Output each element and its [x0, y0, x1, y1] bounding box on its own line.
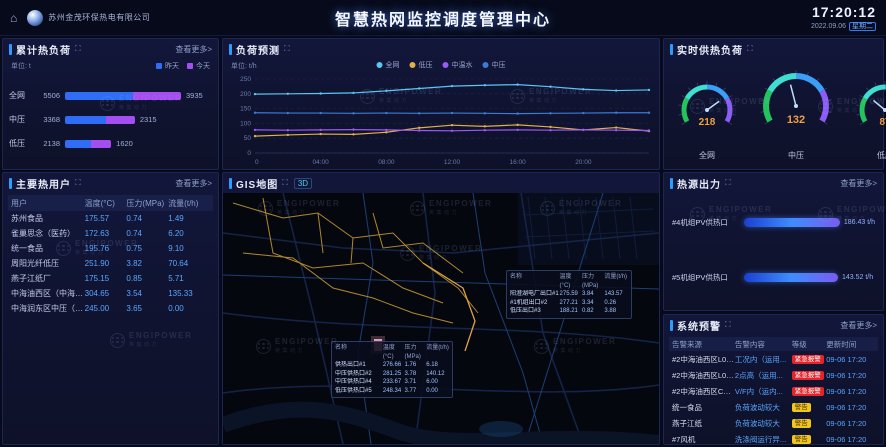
- map-3d-toggle[interactable]: 3D: [294, 178, 312, 189]
- alert-content: 洗涤阀运行异...: [735, 434, 792, 445]
- yesterday-bar: [65, 116, 106, 124]
- temperature-value: 245.00: [85, 304, 127, 313]
- title-accent: [9, 178, 12, 189]
- alert-level-cell: 警告: [792, 434, 827, 445]
- legend-item[interactable]: 今天: [187, 61, 210, 71]
- source-bars: #4机组PV供热口186.43 t/h#5机组PV供热口143.52 t/h: [672, 217, 875, 327]
- expand-icon[interactable]: ⛶: [284, 44, 290, 54]
- column-header: 压力(MPa): [582, 273, 604, 290]
- yesterday-value: 5506: [36, 91, 60, 100]
- expand-icon[interactable]: ⛶: [282, 178, 288, 188]
- pressure-value: 3.78: [405, 370, 427, 379]
- pressure-value: 3.71: [405, 378, 427, 387]
- expand-icon[interactable]: ⛶: [725, 320, 731, 330]
- alert-source: #2中海油西区L0锅...: [672, 354, 735, 365]
- source-value: 186.43 t/h: [844, 219, 875, 226]
- title-accent: [670, 178, 673, 189]
- alert-level-badge: 警告: [792, 403, 811, 413]
- bar-track: [65, 92, 181, 100]
- svg-text:04:00: 04:00: [313, 159, 330, 166]
- column-header: 名称: [510, 273, 560, 290]
- column-header: 温度(°C): [85, 198, 127, 209]
- panel-heat-source-output: 热源出力 ⛶ 查看更多> #4机组PV供热口186.43 t/h#5机组PV供热…: [663, 172, 884, 311]
- panel-body: 用户温度(°C)压力(MPa)流量(t/h)苏州食品175.570.741.49…: [3, 193, 218, 444]
- legend-label: 中压: [492, 60, 506, 70]
- panel-body: 218全网132中压87低压: [664, 59, 883, 169]
- outlet-name: 低压出口#3: [510, 307, 560, 316]
- panel-title: 累计热负荷: [16, 42, 71, 57]
- flow-value: 0.00: [426, 387, 449, 396]
- alert-time: 09-06 17:20: [826, 371, 875, 380]
- user-name: 苏州食品: [11, 213, 85, 224]
- legend-dot: [187, 63, 193, 69]
- column-header: 温度(°C): [383, 344, 405, 361]
- cumulative-bar-row: 中压33682315: [9, 114, 212, 125]
- view-more-link[interactable]: 查看更多>: [175, 178, 212, 189]
- alert-row: 统一食品负荷波动较大警告09-06 17:20: [669, 399, 878, 415]
- cumulative-legend: 昨天今天: [156, 61, 210, 71]
- svg-text:0: 0: [247, 150, 251, 157]
- gauge-dial: 218: [668, 70, 746, 148]
- users-table-header: 用户温度(°C)压力(MPa)流量(t/h): [8, 195, 213, 211]
- alert-level-cell: 警告: [792, 418, 827, 429]
- alert-time: 09-06 17:20: [826, 435, 875, 444]
- column-header: 更新时间: [826, 339, 875, 350]
- svg-text:250: 250: [240, 76, 251, 83]
- user-name: 雀巢思念（医药）: [11, 228, 85, 239]
- forecast-line-chart: 050100150200250004:0008:0012:0016:0020:0…: [225, 65, 657, 176]
- flow-value: 0.26: [604, 299, 628, 308]
- company-name: 苏州金茂环保热电有限公司: [48, 12, 150, 23]
- temperature-value: 175.57: [85, 214, 127, 223]
- pressure-value: 0.85: [126, 274, 168, 283]
- panel-title: 负荷预测: [236, 42, 280, 57]
- panel-title: 主要热用户: [16, 176, 71, 191]
- flow-value: 0.00: [168, 304, 210, 313]
- temperature-value: 275.59: [560, 290, 582, 299]
- date: 2022.09.06: [811, 23, 846, 30]
- alert-level-cell: 警告: [792, 402, 827, 413]
- alert-source: 燕子江纸: [672, 418, 735, 429]
- svg-text:100: 100: [240, 120, 251, 127]
- alert-level-badge: 紧急报警: [792, 371, 824, 381]
- title-accent: [229, 178, 232, 189]
- gauge-label: 中压: [788, 150, 804, 161]
- yesterday-bar: [65, 140, 91, 148]
- alert-level-cell: 紧急报警: [792, 386, 827, 397]
- expand-icon[interactable]: ⛶: [747, 44, 753, 54]
- panel-body: #4机组PV供热口186.43 t/h#5机组PV供热口143.52 t/h: [664, 193, 883, 310]
- users-table: 用户温度(°C)压力(MPa)流量(t/h)苏州食品175.570.741.49…: [8, 195, 213, 316]
- alert-level-cell: 紧急报警: [792, 354, 827, 365]
- gauge-2: 132中压: [746, 60, 846, 161]
- bar-row-label: 低压: [9, 138, 31, 149]
- legend-item[interactable]: 中压: [483, 60, 506, 70]
- source-label: #5机组PV供热口: [672, 272, 744, 283]
- temperature-value: 277.21: [560, 299, 582, 308]
- alert-content: 负荷波动较大: [735, 402, 792, 413]
- expand-icon[interactable]: ⛶: [725, 178, 731, 188]
- alerts-table-header: 告警来源告警内容等级更新时间: [669, 337, 878, 351]
- map-roads: [223, 193, 659, 444]
- alert-row: 燕子江纸负荷波动较大警告09-06 17:20: [669, 415, 878, 431]
- legend-dot: [410, 62, 416, 68]
- panel-header: 实时供热负荷 ⛶: [664, 39, 883, 59]
- outlet-name: #1机组出口#2: [510, 299, 560, 308]
- today-bar: [106, 116, 134, 124]
- tooltip-table: 名称温度(°C)压力(MPa)流量(t/h)阳澄湖电厂出口#1275.593.8…: [510, 273, 628, 316]
- column-header: 压力(MPa): [126, 198, 168, 209]
- table-row: 周阳光纤低压251.903.8270.64: [8, 256, 213, 271]
- top-header: ⌂ 苏州金茂环保热电有限公司 智慧热网监控调度管理中心 17:20:12 202…: [0, 0, 886, 36]
- table-row: 中海油西区（中海油）304.653.54135.33: [8, 286, 213, 301]
- map-tooltip-1: 名称温度(°C)压力(MPa)流量(t/h)阳澄湖电厂出口#1275.593.8…: [506, 270, 632, 319]
- table-row: 雀巢思念（医药）172.630.746.20: [8, 226, 213, 241]
- alert-content: 工况内（运用...: [735, 354, 792, 365]
- outlet-name: 供热出口#1: [335, 361, 383, 370]
- bar-row-label: 全网: [9, 90, 31, 101]
- user-name: 周阳光纤低压: [11, 258, 85, 269]
- temperature-value: 233.67: [383, 378, 405, 387]
- legend-dot: [377, 62, 383, 68]
- alert-row: #2中海油西区CO排...V/F内（运内...紧急报警09-06 17:20: [669, 383, 878, 399]
- legend-label: 低压: [419, 60, 433, 70]
- temperature-value: 248.34: [383, 387, 405, 396]
- source-bar-row: #5机组PV供热口143.52 t/h: [672, 272, 875, 283]
- svg-text:08:00: 08:00: [378, 159, 395, 166]
- flow-value: 140.12: [426, 370, 449, 379]
- weekday-badge: 星期二: [849, 22, 876, 31]
- pressure-value: 0.75: [126, 244, 168, 253]
- panel-header: 累计热负荷 ⛶ 查看更多>: [3, 39, 218, 59]
- clock: 17:20:12: [811, 4, 876, 20]
- flow-value: 3.88: [604, 307, 628, 316]
- bar-track: [65, 116, 135, 124]
- column-header: 流量(t/h): [168, 198, 210, 209]
- user-name: 中海润东区中压（预）: [11, 303, 85, 314]
- pressure-value: 3.82: [126, 259, 168, 268]
- legend-dot: [156, 63, 162, 69]
- column-header: 告警内容: [735, 339, 792, 350]
- alert-level-badge: 警告: [792, 435, 811, 445]
- alert-content: 负荷波动较大: [735, 418, 792, 429]
- svg-text:0: 0: [255, 159, 259, 166]
- panel-realtime-heat-load: 实时供热负荷 ⛶ 218全网132中压87低压: [663, 38, 884, 170]
- gauge-dial: 87: [846, 70, 886, 148]
- view-more-link[interactable]: 查看更多>: [840, 178, 877, 189]
- panel-body: 名称温度(°C)压力(MPa)流量(t/h)阳澄湖电厂出口#1275.593.8…: [223, 193, 659, 444]
- flow-value: 5.71: [168, 274, 210, 283]
- today-bar: [91, 140, 111, 148]
- title-accent: [9, 44, 12, 55]
- tooltip-table: 名称温度(°C)压力(MPa)流量(t/h)供热出口#1276.661.766.…: [335, 344, 449, 395]
- cumulative-bars: 全网55063935中压33682315低压21381620: [9, 77, 212, 162]
- panel-main-heat-users: 主要热用户 ⛶ 查看更多> 用户温度(°C)压力(MPa)流量(t/h)苏州食品…: [2, 172, 219, 445]
- flow-value: 70.64: [168, 259, 210, 268]
- flow-value: 6.18: [426, 361, 449, 370]
- pressure-value: 0.74: [126, 214, 168, 223]
- panel-body: 告警来源告警内容等级更新时间#2中海油西区L0锅...工况内（运用...紧急报警…: [664, 335, 883, 444]
- forecast-svg: 050100150200250004:0008:0012:0016:0020:0…: [225, 65, 657, 171]
- pressure-value: 3.34: [582, 299, 604, 308]
- alert-time: 09-06 17:20: [826, 403, 875, 412]
- date-line: 2022.09.06星期二: [811, 21, 876, 31]
- svg-text:12:00: 12:00: [444, 159, 461, 166]
- yesterday-bar: [65, 92, 133, 100]
- table-row: 燕子江纸厂175.150.855.71: [8, 271, 213, 286]
- map-tooltip-2: 名称温度(°C)压力(MPa)流量(t/h)供热出口#1276.661.766.…: [331, 341, 453, 398]
- user-name: 中海油西区（中海油）: [11, 288, 85, 299]
- legend-item[interactable]: 全网: [377, 60, 400, 70]
- temperature-value: 276.66: [383, 361, 405, 370]
- legend-item[interactable]: 中温水: [443, 60, 473, 70]
- flow-value: 1.49: [168, 214, 210, 223]
- temperature-value: 175.15: [85, 274, 127, 283]
- panel-header: 热源出力 ⛶ 查看更多>: [664, 173, 883, 193]
- column-header: 告警来源: [672, 339, 735, 350]
- source-bar-row: #4机组PV供热口186.43 t/h: [672, 217, 875, 228]
- company-logo: [27, 10, 43, 26]
- legend-item[interactable]: 昨天: [156, 61, 179, 71]
- yesterday-value: 2138: [36, 139, 60, 148]
- gauge-value: 87: [879, 117, 886, 128]
- datetime-block: 17:20:12 2022.09.06星期二: [811, 4, 876, 31]
- panel-system-alerts: 系统预警 ⛶ 查看更多> 告警来源告警内容等级更新时间#2中海油西区L0锅...…: [663, 314, 884, 445]
- expand-icon[interactable]: ⛶: [75, 178, 81, 188]
- pressure-value: 3.77: [405, 387, 427, 396]
- panel-gis-map: GIS地图 ⛶ 3D: [222, 172, 660, 445]
- panel-header: 主要热用户 ⛶ 查看更多>: [3, 173, 218, 193]
- title-accent: [229, 44, 232, 55]
- cumulative-bar-row: 低压21381620: [9, 138, 212, 149]
- flow-value: 143.57: [604, 290, 628, 299]
- legend-label: 今天: [196, 61, 210, 71]
- alert-level-cell: 紧急报警: [792, 370, 827, 381]
- svg-text:150: 150: [240, 106, 251, 113]
- gauge-3: 87低压: [846, 70, 886, 161]
- gauges-row: 218全网132中压87低压: [664, 59, 883, 169]
- home-icon[interactable]: ⌂: [10, 11, 17, 25]
- gauge-1: 218全网: [668, 70, 746, 161]
- column-header: 名称: [335, 344, 383, 361]
- svg-text:50: 50: [244, 135, 252, 142]
- gis-map-canvas[interactable]: 名称温度(°C)压力(MPa)流量(t/h)阳澄湖电厂出口#1275.593.8…: [223, 193, 659, 444]
- pressure-value: 3.84: [582, 290, 604, 299]
- source-value: 143.52 t/h: [842, 274, 873, 281]
- legend-dot: [483, 62, 489, 68]
- legend-item[interactable]: 低压: [410, 60, 433, 70]
- column-header: 温度(°C): [560, 273, 582, 290]
- alert-time: 09-06 17:20: [826, 387, 875, 396]
- alerts-table: 告警来源告警内容等级更新时间#2中海油西区L0锅...工况内（运用...紧急报警…: [669, 337, 878, 447]
- dashboard: ⌂ 苏州金茂环保热电有限公司 智慧热网监控调度管理中心 17:20:12 202…: [0, 0, 886, 447]
- svg-text:16:00: 16:00: [510, 159, 527, 166]
- panel-title: 实时供热负荷: [677, 42, 743, 57]
- panel-title: 热源出力: [677, 176, 721, 191]
- temperature-value: 251.90: [85, 259, 127, 268]
- source-bar: [744, 273, 838, 282]
- gauge-value: 132: [787, 114, 805, 126]
- temperature-value: 195.76: [85, 244, 127, 253]
- alert-row: #7风机洗涤阀运行异...警告09-06 17:20: [669, 431, 878, 447]
- table-row: 苏州食品175.570.741.49: [8, 211, 213, 226]
- outlet-name: 中压供热口#2: [335, 370, 383, 379]
- bar-track: [65, 140, 111, 148]
- column-header: 压力(MPa): [405, 344, 427, 361]
- legend-label: 昨天: [165, 61, 179, 71]
- alert-level-badge: 紧急报警: [792, 387, 824, 397]
- view-more-link[interactable]: 查看更多>: [840, 320, 877, 331]
- today-value: 3935: [186, 91, 203, 100]
- user-name: 燕子江纸厂: [11, 273, 85, 284]
- alert-row: #2中海油西区L0锅...工况内（运用...紧急报警09-06 17:20: [669, 351, 878, 367]
- bar-row-label: 中压: [9, 114, 31, 125]
- svg-text:200: 200: [240, 91, 251, 98]
- alert-source: #7风机: [672, 434, 735, 445]
- panel-header: GIS地图 ⛶ 3D: [223, 173, 659, 193]
- panel-cumulative-heat-load: 累计热负荷 ⛶ 查看更多> 单位: t 昨天今天 全网55063935中压336…: [2, 38, 219, 170]
- pressure-value: 0.74: [126, 229, 168, 238]
- source-track: 143.52 t/h: [744, 273, 875, 282]
- svg-text:20:00: 20:00: [575, 159, 592, 166]
- source-label: #4机组PV供热口: [672, 217, 744, 228]
- alert-row: #2中海油西区L0锅...2点高（运用...紧急报警09-06 17:20: [669, 367, 878, 383]
- alert-content: 2点高（运用...: [735, 370, 792, 381]
- gauge-value: 218: [699, 117, 716, 128]
- unit-label: 单位: t: [11, 61, 31, 71]
- gauge-dial: 132: [746, 60, 846, 148]
- column-header: 流量(t/h): [426, 344, 449, 361]
- flow-value: 6.20: [168, 229, 210, 238]
- alert-time: 09-06 17:20: [826, 419, 875, 428]
- forecast-legend: 全网低压中温水中压: [377, 60, 506, 70]
- pressure-value: 3.65: [126, 304, 168, 313]
- column-header: 流量(t/h): [604, 273, 628, 290]
- flow-value: 9.10: [168, 244, 210, 253]
- yesterday-value: 3368: [36, 115, 60, 124]
- temperature-value: 188.21: [560, 307, 582, 316]
- flow-value: 135.33: [168, 289, 210, 298]
- column-header: 用户: [11, 198, 85, 209]
- column-header: 等级: [792, 339, 827, 350]
- panel-header: 负荷预测 ⛶: [223, 39, 659, 59]
- alert-source: 统一食品: [672, 402, 735, 413]
- today-bar: [133, 92, 181, 100]
- alert-source: #2中海油西区L0锅...: [672, 370, 735, 381]
- today-value: 2315: [140, 115, 157, 124]
- alert-level-badge: 紧急报警: [792, 355, 824, 365]
- gauge-label: 全网: [699, 150, 715, 161]
- pressure-value: 0.82: [582, 307, 604, 316]
- panel-body: 单位: t 昨天今天 全网55063935中压33682315低压2138162…: [3, 59, 218, 169]
- pressure-value: 1.76: [405, 361, 427, 370]
- source-bar: [744, 218, 840, 227]
- pressure-value: 3.54: [126, 289, 168, 298]
- title-accent: [670, 320, 673, 331]
- outlet-name: 中压供热口#4: [335, 378, 383, 387]
- temperature-value: 172.63: [85, 229, 127, 238]
- source-track: 186.43 t/h: [744, 218, 875, 227]
- user-name: 统一食品: [11, 243, 85, 254]
- table-row: 统一食品195.760.759.10: [8, 241, 213, 256]
- table-row: 中海润东区中压（预）245.003.650.00: [8, 301, 213, 316]
- panel-header: 系统预警 ⛶ 查看更多>: [664, 315, 883, 335]
- today-value: 1620: [116, 139, 133, 148]
- page-title: 智慧热网监控调度管理中心: [335, 6, 551, 30]
- alert-source: #2中海油西区CO排...: [672, 386, 735, 397]
- temperature-value: 304.65: [85, 289, 127, 298]
- temperature-value: 281.25: [383, 370, 405, 379]
- alert-level-badge: 警告: [792, 419, 811, 429]
- panel-load-forecast: 负荷预测 ⛶ 单位: t/h 全网低压中温水中压 050100150200250…: [222, 38, 660, 170]
- panel-body: 单位: t/h 全网低压中温水中压 050100150200250004:000…: [223, 59, 659, 169]
- expand-icon[interactable]: ⛶: [75, 44, 81, 54]
- cumulative-bar-row: 全网55063935: [9, 90, 212, 101]
- legend-dot: [443, 62, 449, 68]
- panel-title: GIS地图: [236, 176, 278, 191]
- panel-title: 系统预警: [677, 318, 721, 333]
- view-more-link[interactable]: 查看更多>: [175, 44, 212, 55]
- alert-content: V/F内（运内...: [735, 386, 792, 397]
- legend-label: 全网: [386, 60, 400, 70]
- title-accent: [670, 44, 673, 55]
- gauge-label: 低压: [877, 150, 886, 161]
- outlet-name: 低压供热口#5: [335, 387, 383, 396]
- legend-label: 中温水: [452, 60, 473, 70]
- flow-value: 6.00: [426, 378, 449, 387]
- outlet-name: 阳澄湖电厂出口#1: [510, 290, 560, 299]
- alert-time: 09-06 17:20: [826, 355, 875, 364]
